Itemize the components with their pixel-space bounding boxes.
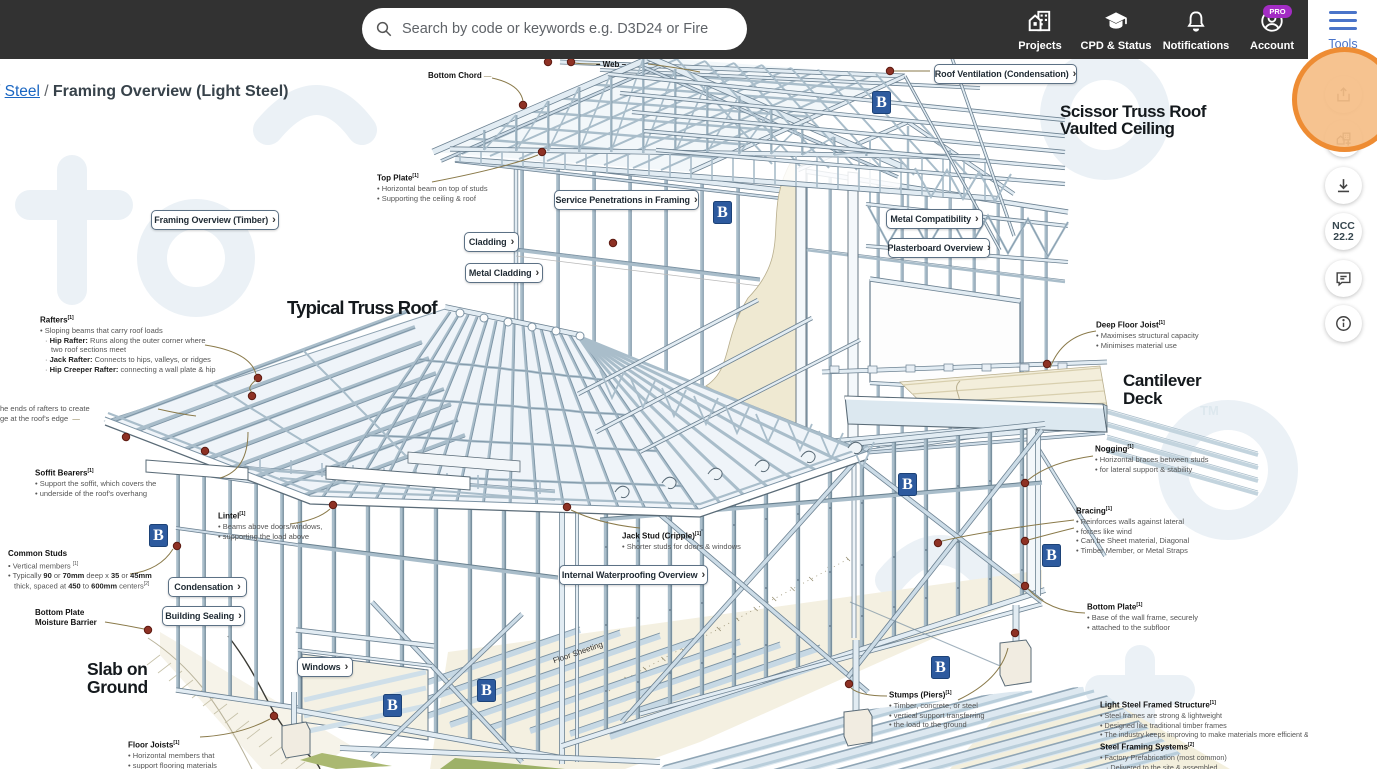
svg-text:TM: TM	[1200, 403, 1219, 418]
